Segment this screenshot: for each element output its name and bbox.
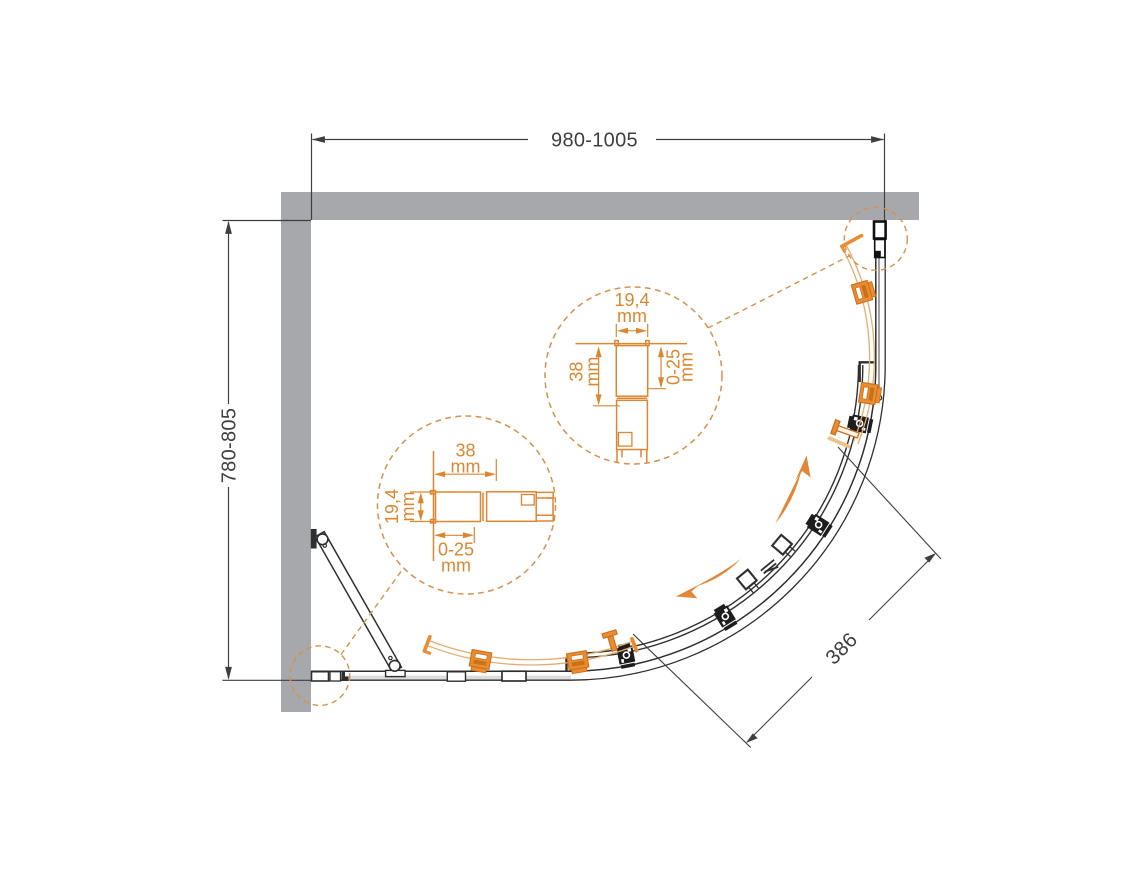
svg-text:mm: mm <box>583 357 603 387</box>
svg-text:mm: mm <box>617 306 647 326</box>
svg-text:mm: mm <box>451 457 481 477</box>
svg-text:mm: mm <box>441 556 471 576</box>
svg-text:780-805: 780-805 <box>219 408 241 484</box>
svg-text:mm: mm <box>677 352 697 382</box>
svg-text:980-1005: 980-1005 <box>551 130 638 152</box>
svg-text:mm: mm <box>398 492 418 522</box>
